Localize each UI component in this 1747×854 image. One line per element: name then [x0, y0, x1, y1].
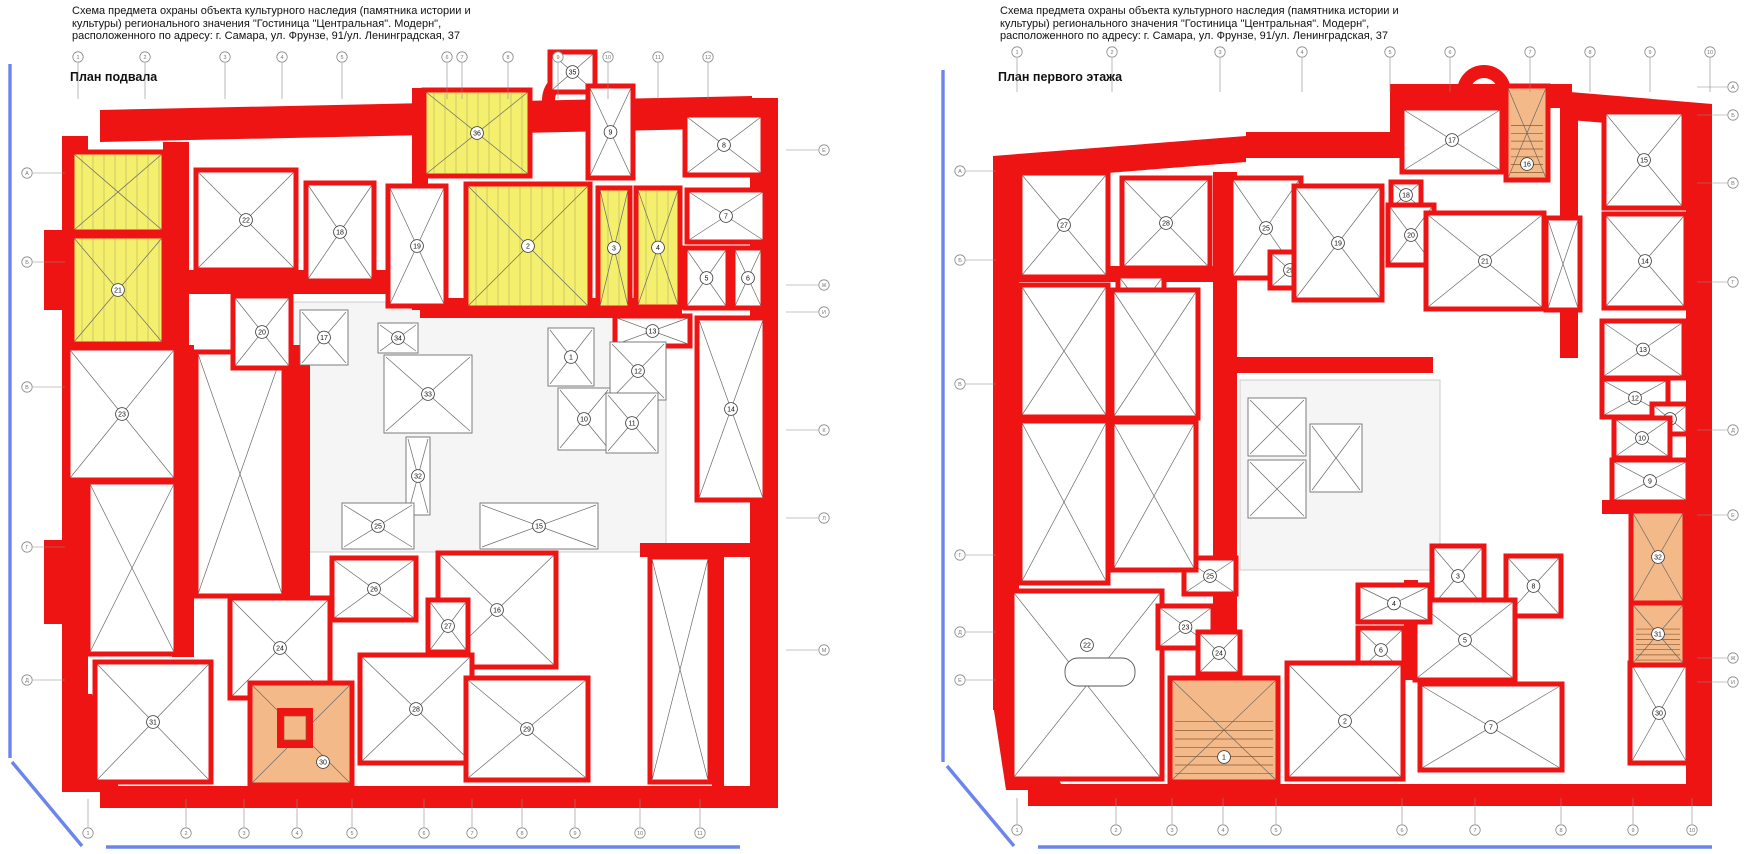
- room-7: 7: [1420, 684, 1562, 770]
- svg-text:3: 3: [242, 831, 245, 837]
- room-8: 8: [685, 115, 763, 175]
- room-14: 14: [1604, 214, 1686, 308]
- room-number: 33: [424, 391, 432, 398]
- svg-text:5: 5: [1388, 50, 1391, 56]
- room-24: 24: [1198, 632, 1240, 674]
- floor-plans-drawing: 2122181936234359875613142320261627242829…: [0, 0, 1747, 854]
- room-number: 6: [746, 275, 750, 282]
- svg-text:7: 7: [1473, 828, 1476, 834]
- svg-text:2: 2: [143, 55, 146, 61]
- room-10: 10: [558, 388, 610, 450]
- svg-text:Е: Е: [1731, 513, 1735, 519]
- svg-text:10: 10: [605, 55, 611, 61]
- room-number: 19: [1334, 240, 1342, 247]
- room: [1112, 290, 1198, 418]
- svg-text:7: 7: [470, 831, 473, 837]
- svg-text:6: 6: [422, 831, 425, 837]
- room-number: 27: [444, 623, 452, 630]
- svg-text:Г: Г: [959, 553, 962, 559]
- svg-text:А: А: [958, 169, 962, 175]
- room-number: 21: [1481, 258, 1489, 265]
- svg-text:10: 10: [637, 831, 643, 837]
- room-16: 16: [1506, 86, 1548, 180]
- room-number: 17: [1448, 137, 1456, 144]
- room-number: 36: [473, 130, 481, 137]
- room-number: 27: [1060, 222, 1068, 229]
- room-number: 34: [394, 335, 402, 342]
- svg-text:5: 5: [1274, 828, 1277, 834]
- svg-text:И: И: [1731, 680, 1735, 686]
- room-number: 18: [336, 229, 344, 236]
- svg-text:И: И: [822, 310, 826, 316]
- svg-text:Б: Б: [1731, 113, 1735, 119]
- svg-text:1: 1: [1015, 828, 1018, 834]
- svg-text:4: 4: [1300, 50, 1303, 56]
- room-number: 20: [258, 329, 266, 336]
- room: [650, 557, 710, 782]
- svg-text:А: А: [25, 171, 29, 177]
- svg-text:2: 2: [1114, 828, 1117, 834]
- room-number: 17: [320, 335, 328, 342]
- room-number: 1: [569, 354, 573, 361]
- room-31: 31: [1631, 603, 1685, 665]
- svg-text:3: 3: [223, 55, 226, 61]
- room: [1546, 218, 1580, 310]
- room-27: 27: [428, 600, 468, 652]
- room-number: 25: [1206, 573, 1214, 580]
- svg-text:3: 3: [1218, 50, 1221, 56]
- svg-text:3: 3: [1170, 828, 1173, 834]
- room-10: 10: [1614, 418, 1670, 458]
- room-number: 21: [114, 287, 122, 294]
- room-number: 14: [727, 406, 735, 413]
- room-number: 4: [656, 245, 660, 252]
- room: [1112, 422, 1196, 570]
- room-14: 14: [697, 318, 765, 500]
- room-9: 9: [1612, 460, 1688, 502]
- room-number: 1: [1222, 754, 1226, 761]
- svg-text:Ж: Ж: [821, 283, 826, 289]
- svg-text:В: В: [25, 385, 29, 391]
- svg-text:Е: Е: [958, 678, 962, 684]
- svg-text:1: 1: [1015, 50, 1018, 56]
- room-number: 5: [705, 275, 709, 282]
- room-13: 13: [1602, 321, 1684, 378]
- room-1: 1: [1170, 678, 1278, 782]
- room-number: 22: [1083, 642, 1091, 649]
- room-number: 11: [628, 420, 635, 427]
- room-30: 30: [250, 683, 352, 785]
- room-number: 19: [413, 243, 421, 250]
- room: [1248, 398, 1306, 456]
- room-22: 22: [1012, 591, 1162, 779]
- svg-text:Д: Д: [958, 630, 962, 636]
- room-21: 21: [72, 236, 164, 344]
- svg-text:1: 1: [86, 831, 89, 837]
- room-32: 32: [1631, 511, 1685, 603]
- room-2: 2: [466, 184, 590, 308]
- room-number: 30: [1655, 710, 1663, 717]
- rooms-layer: 2728252926171819202115141312111093038574…: [1012, 86, 1688, 782]
- room-number: 2: [526, 243, 530, 250]
- room-number: 15: [535, 523, 543, 530]
- room: [88, 482, 176, 654]
- room-number: 24: [276, 645, 284, 652]
- room-28: 28: [1122, 178, 1210, 268]
- room-34: 34: [378, 323, 418, 353]
- room-number: 12: [634, 368, 642, 375]
- room-number: 31: [1654, 631, 1662, 638]
- room-number: 23: [118, 411, 126, 418]
- svg-text:Е: Е: [822, 148, 826, 154]
- room-26: 26: [332, 558, 416, 620]
- room-number: 7: [1489, 724, 1493, 731]
- room-29: 29: [466, 678, 588, 780]
- room-number: 16: [1523, 161, 1531, 168]
- room-number: 14: [1641, 258, 1649, 265]
- svg-text:8: 8: [506, 55, 509, 61]
- room-number: 23: [1182, 624, 1190, 631]
- room-12: 12: [610, 342, 666, 400]
- svg-text:4: 4: [295, 831, 298, 837]
- svg-text:7: 7: [1528, 50, 1531, 56]
- room-number: 3: [612, 245, 616, 252]
- room-31: 31: [95, 662, 211, 782]
- room-number: 29: [523, 726, 531, 733]
- room-number: 8: [1532, 583, 1536, 590]
- room-3: 3: [598, 188, 630, 308]
- svg-text:6: 6: [1448, 50, 1451, 56]
- svg-text:9: 9: [1631, 828, 1634, 834]
- svg-text:А: А: [1731, 85, 1735, 91]
- room-4: 4: [1358, 585, 1430, 622]
- svg-text:М: М: [822, 648, 827, 654]
- room-9: 9: [588, 86, 633, 178]
- room: [196, 352, 284, 596]
- room-number: 16: [493, 607, 501, 614]
- room-33: 33: [384, 355, 472, 433]
- room-11: 11: [606, 393, 658, 453]
- svg-text:Б: Б: [958, 258, 962, 264]
- svg-text:9: 9: [1648, 50, 1651, 56]
- svg-text:Ж: Ж: [1730, 656, 1735, 662]
- svg-text:Г: Г: [26, 545, 29, 551]
- room-number: 35: [569, 69, 577, 76]
- room: [1020, 421, 1108, 583]
- room-number: 28: [412, 706, 420, 713]
- room-19: 19: [1294, 186, 1382, 300]
- room-number: 24: [1215, 650, 1223, 657]
- room-18: 18: [306, 183, 374, 281]
- svg-text:6: 6: [445, 55, 448, 61]
- cloud-annotation: [1065, 658, 1135, 686]
- room-number: 9: [1648, 478, 1652, 485]
- room-number: 2: [1343, 718, 1347, 725]
- svg-text:11: 11: [655, 55, 661, 61]
- room-21: 21: [1426, 213, 1544, 309]
- street-boundary-line: [947, 766, 1014, 846]
- room-13: 13: [615, 316, 690, 346]
- room-27: 27: [1020, 173, 1108, 277]
- svg-text:7: 7: [460, 55, 463, 61]
- room-number: 4: [1392, 601, 1396, 608]
- basement-plan: 2122181936234359875613142320261627242829…: [10, 52, 829, 847]
- svg-text:Д: Д: [25, 678, 29, 684]
- room-number: 28: [1162, 220, 1170, 227]
- room-number: 25: [1262, 225, 1270, 232]
- svg-text:9: 9: [573, 831, 576, 837]
- room-number: 6: [1379, 647, 1383, 654]
- svg-text:8: 8: [520, 831, 523, 837]
- room-3: 3: [1432, 546, 1484, 606]
- room-5: 5: [685, 248, 728, 308]
- room-15: 15: [480, 503, 598, 549]
- svg-text:6: 6: [1400, 828, 1403, 834]
- svg-text:8: 8: [1588, 50, 1591, 56]
- room-28: 28: [360, 655, 472, 763]
- room-15: 15: [1604, 112, 1684, 208]
- room-number: 32: [1654, 554, 1662, 561]
- room-number: 20: [1407, 232, 1415, 239]
- svg-text:Л: Л: [822, 516, 826, 522]
- room-6: 6: [733, 248, 763, 308]
- room-number: 31: [149, 719, 157, 726]
- room-20: 20: [233, 296, 291, 368]
- room: [1248, 460, 1306, 518]
- svg-text:4: 4: [280, 55, 283, 61]
- room-19: 19: [388, 186, 446, 306]
- svg-text:10: 10: [1689, 828, 1695, 834]
- room-36: 36: [424, 90, 530, 176]
- svg-text:11: 11: [697, 831, 703, 837]
- svg-text:4: 4: [1221, 828, 1224, 834]
- room-number: 15: [1640, 157, 1648, 164]
- room-7: 7: [687, 190, 765, 242]
- room-number: 13: [649, 328, 657, 335]
- svg-text:9: 9: [556, 55, 559, 61]
- room: [1020, 285, 1108, 417]
- room-number: 13: [1639, 347, 1647, 354]
- room-number: 12: [1631, 395, 1639, 402]
- page: Схема предмета охраны объекта культурног…: [0, 0, 1747, 854]
- svg-text:2: 2: [1110, 50, 1113, 56]
- room-23: 23: [68, 348, 176, 480]
- room-number: 22: [242, 217, 250, 224]
- svg-text:В: В: [1731, 181, 1735, 187]
- room: [1310, 424, 1362, 492]
- room-number: 26: [370, 586, 378, 593]
- room-number: 10: [580, 416, 588, 423]
- svg-text:8: 8: [1559, 828, 1562, 834]
- room-number: 5: [1463, 637, 1467, 644]
- svg-text:12: 12: [705, 55, 711, 61]
- room-number: 8: [722, 142, 726, 149]
- room-4: 4: [636, 188, 680, 307]
- room-17: 17: [1402, 108, 1502, 172]
- svg-text:5: 5: [350, 831, 353, 837]
- room-22: 22: [196, 170, 296, 270]
- svg-text:Г: Г: [1732, 280, 1735, 286]
- room-number: 18: [1402, 192, 1410, 199]
- svg-text:10: 10: [1707, 50, 1713, 56]
- room-number: 30: [319, 759, 327, 766]
- svg-text:Д: Д: [1731, 428, 1735, 434]
- room-number: 7: [724, 213, 728, 220]
- room-2: 2: [1287, 663, 1403, 779]
- room-number: 25: [374, 523, 382, 530]
- room-17: 17: [300, 310, 348, 365]
- svg-text:В: В: [958, 382, 962, 388]
- room-number: 10: [1638, 435, 1646, 442]
- svg-text:2: 2: [184, 831, 187, 837]
- room-number: 3: [1456, 573, 1460, 580]
- room: [72, 152, 164, 232]
- room-1: 1: [548, 328, 594, 386]
- svg-text:1: 1: [76, 55, 79, 61]
- room-30: 30: [1630, 663, 1688, 763]
- room-number: 32: [414, 473, 422, 480]
- svg-text:Б: Б: [25, 260, 29, 266]
- svg-text:5: 5: [340, 55, 343, 61]
- room-number: 9: [609, 129, 613, 136]
- first-floor-plan: 2728252926171819202115141312111093038574…: [943, 47, 1738, 847]
- room-25: 25: [342, 503, 414, 549]
